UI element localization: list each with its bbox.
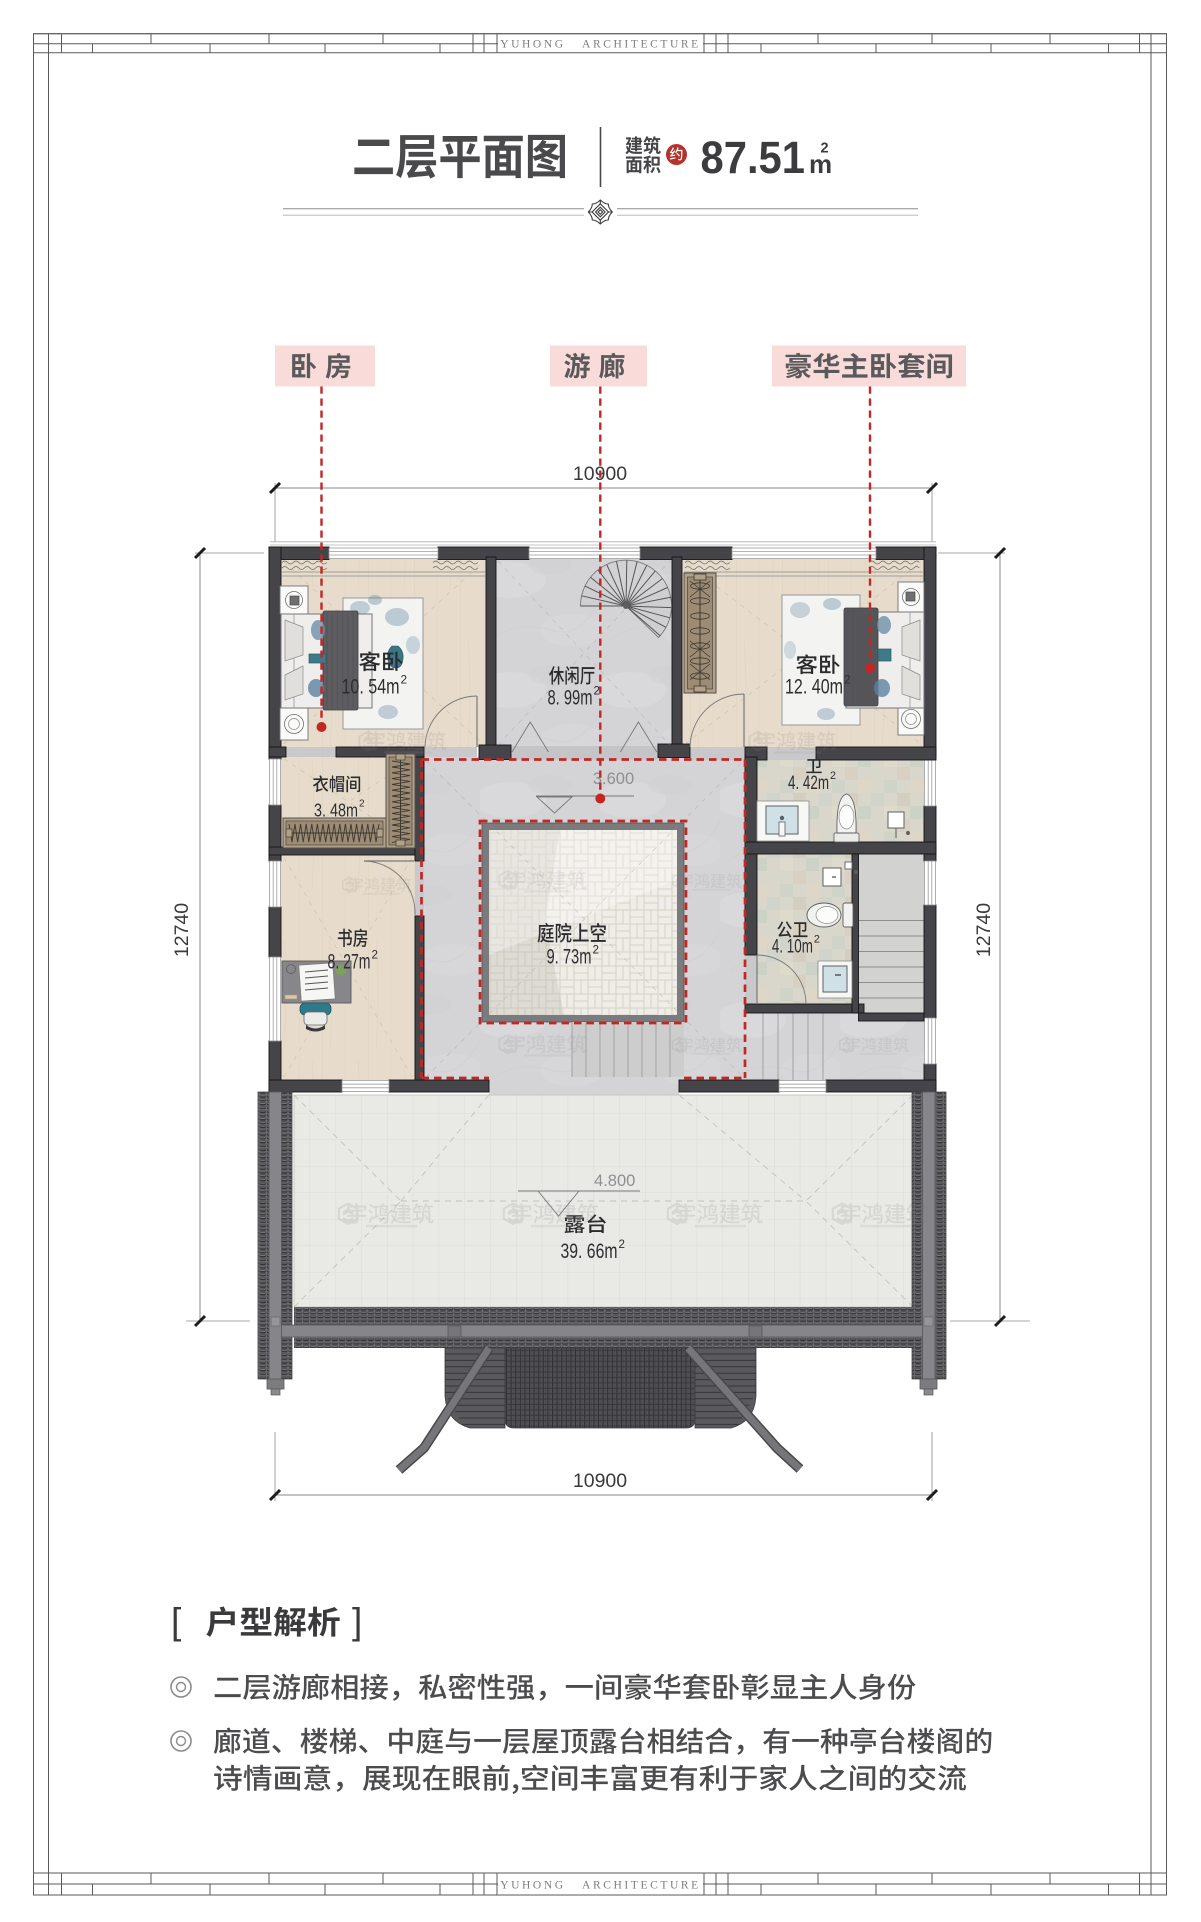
svg-text:2: 2	[814, 933, 820, 945]
svg-text:8. 99m: 8. 99m	[548, 687, 593, 710]
svg-text:12740: 12740	[171, 903, 193, 957]
svg-text:2: 2	[844, 673, 851, 687]
svg-text:]: ]	[352, 1601, 362, 1642]
svg-text:YUHONG ARCHITECTURE: YUHONG ARCHITECTURE	[500, 1880, 701, 1892]
svg-text:10900: 10900	[573, 1470, 627, 1492]
svg-text:87.51: 87.51	[701, 132, 806, 183]
svg-text:2: 2	[359, 799, 365, 810]
svg-text:9. 73m: 9. 73m	[547, 946, 592, 969]
svg-text:2: 2	[401, 673, 408, 687]
svg-text:10. 54m: 10. 54m	[342, 675, 400, 699]
svg-text:2: 2	[594, 685, 600, 698]
svg-text:2: 2	[593, 944, 599, 957]
svg-text:3.600: 3.600	[593, 770, 634, 788]
svg-text:2: 2	[372, 949, 378, 962]
svg-text:4.800: 4.800	[594, 1172, 635, 1190]
svg-text:2: 2	[619, 1238, 625, 1251]
svg-text:4. 10m: 4. 10m	[772, 935, 813, 957]
svg-text:8. 27m: 8. 27m	[328, 951, 371, 974]
svg-text:12. 40m: 12. 40m	[785, 675, 843, 699]
svg-text:2: 2	[821, 141, 829, 157]
svg-text:12740: 12740	[973, 903, 995, 957]
svg-text:2: 2	[830, 770, 836, 782]
svg-text:4. 42m: 4. 42m	[788, 772, 829, 794]
svg-text:YUHONG ARCHITECTURE: YUHONG ARCHITECTURE	[500, 39, 701, 51]
svg-text:[: [	[171, 1601, 181, 1642]
svg-text:39. 66m: 39. 66m	[561, 1240, 618, 1263]
